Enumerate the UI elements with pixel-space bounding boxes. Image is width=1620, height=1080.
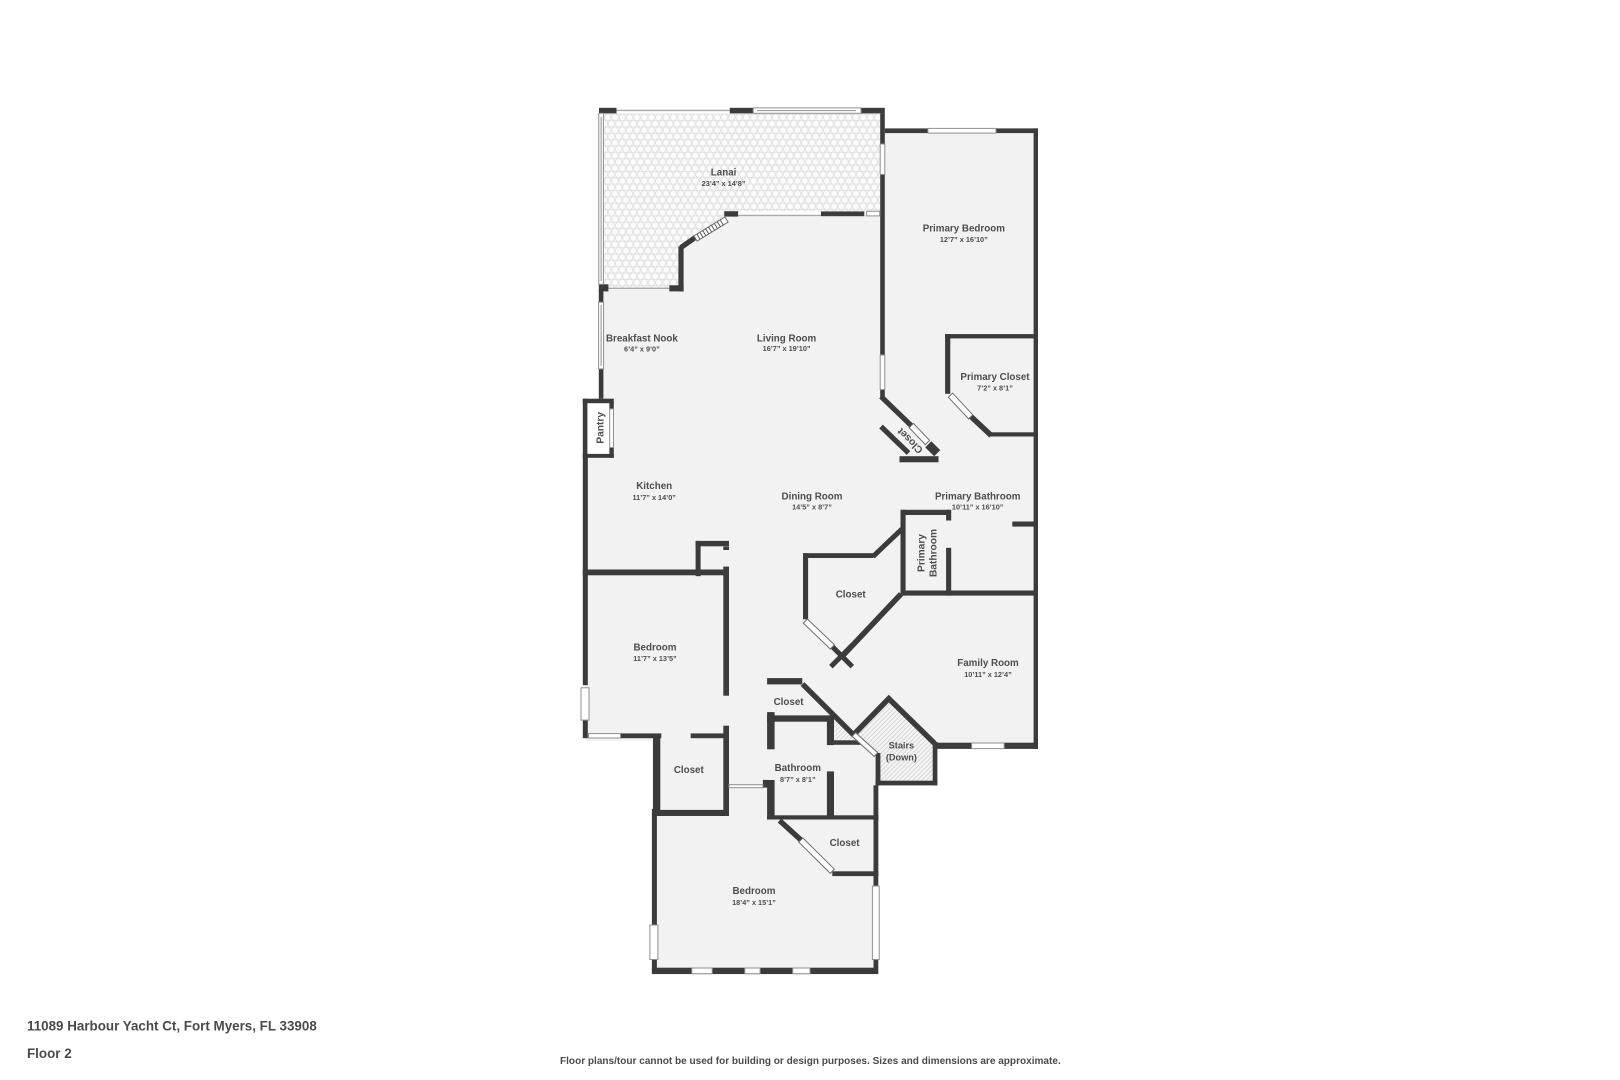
svg-text:16’7” x 19’10”: 16’7” x 19’10” xyxy=(763,344,811,353)
svg-text:Bathroom: Bathroom xyxy=(929,529,940,577)
svg-text:Primary Bathroom: Primary Bathroom xyxy=(935,491,1021,502)
svg-text:Closet: Closet xyxy=(836,590,867,601)
svg-text:11’7” x 13’5”: 11’7” x 13’5” xyxy=(633,654,677,663)
svg-text:Closet: Closet xyxy=(830,838,861,849)
svg-text:Breakfast Nook: Breakfast Nook xyxy=(606,334,678,345)
svg-text:18’4” x 15’1”: 18’4” x 15’1” xyxy=(732,898,776,907)
svg-text:8’7” x 8’1”: 8’7” x 8’1” xyxy=(780,775,816,784)
svg-text:Primary Bedroom: Primary Bedroom xyxy=(923,224,1006,235)
svg-text:23’4” x 14’8”: 23’4” x 14’8” xyxy=(702,179,746,188)
svg-text:14’5” x 8’7”: 14’5” x 8’7” xyxy=(792,503,832,512)
svg-text:6’4” x 9’0”: 6’4” x 9’0” xyxy=(624,345,660,354)
svg-text:12’7” x 16’10”: 12’7” x 16’10” xyxy=(940,235,988,244)
svg-text:7’2” x 8’1”: 7’2” x 8’1” xyxy=(977,384,1013,393)
svg-text:Living Room: Living Room xyxy=(757,333,817,344)
svg-text:Closet: Closet xyxy=(674,765,705,776)
svg-text:Floor 2: Floor 2 xyxy=(27,1046,72,1061)
svg-text:Bedroom: Bedroom xyxy=(732,886,775,897)
svg-text:10’11” x 12’4”: 10’11” x 12’4” xyxy=(964,670,1012,679)
svg-text:Primary: Primary xyxy=(917,534,928,572)
svg-text:Closet: Closet xyxy=(774,697,805,708)
svg-text:10’11” x 16’10”: 10’11” x 16’10” xyxy=(952,503,1004,512)
svg-text:Bathroom: Bathroom xyxy=(775,763,822,774)
svg-text:Kitchen: Kitchen xyxy=(636,481,672,492)
svg-text:Floor plans/tour cannot be use: Floor plans/tour cannot be used for buil… xyxy=(560,1056,1061,1067)
svg-text:Family Room: Family Room xyxy=(957,658,1019,669)
svg-text:Lanai: Lanai xyxy=(711,168,737,179)
svg-text:11’7” x 14’0”: 11’7” x 14’0” xyxy=(632,493,676,502)
svg-text:Bedroom: Bedroom xyxy=(633,643,676,654)
svg-text:Dining Room: Dining Room xyxy=(782,491,843,502)
svg-text:Pantry: Pantry xyxy=(595,412,606,444)
svg-text:Stairs: Stairs xyxy=(889,741,915,751)
svg-text:Primary Closet: Primary Closet xyxy=(960,372,1030,383)
svg-text:(Down): (Down) xyxy=(886,752,917,762)
svg-text:11089 Harbour Yacht Ct, Fort M: 11089 Harbour Yacht Ct, Fort Myers, FL 3… xyxy=(27,1019,317,1034)
